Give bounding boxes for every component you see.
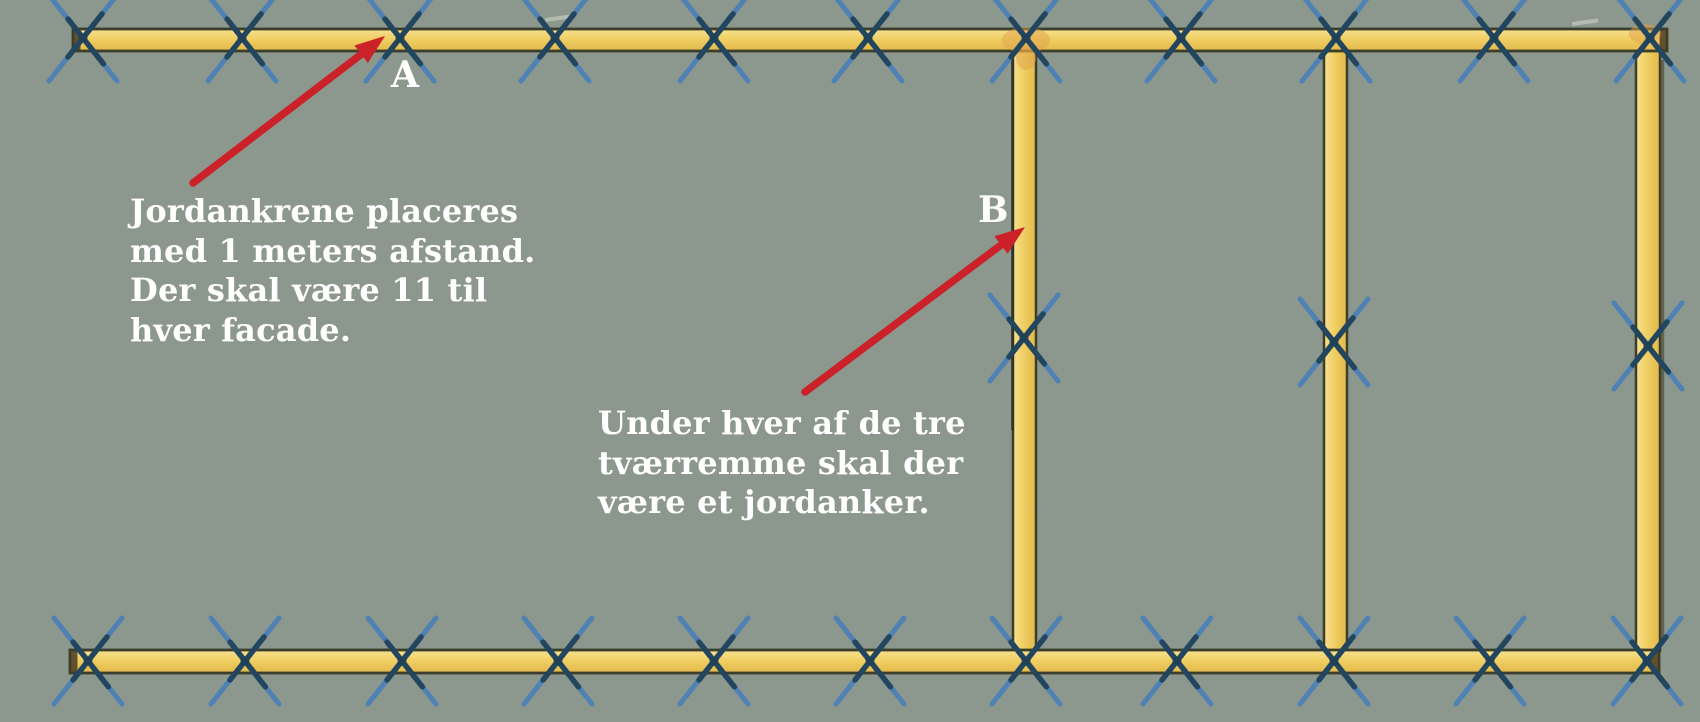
- note-jordankrene-placement: Jordankrene placeresmed 1 meters afstand…: [130, 192, 536, 350]
- diagram-canvas: Jordankrene placeresmed 1 meters afstand…: [0, 0, 1700, 722]
- callout-arrow-a: [193, 36, 385, 183]
- note-line: hver facade.: [130, 311, 536, 351]
- note-line: Under hver af de tre: [598, 404, 966, 444]
- note-line: Der skal være 11 til: [130, 271, 536, 311]
- beam-end-cap: [71, 651, 78, 672]
- frame-plan-diagram: [0, 0, 1700, 722]
- point-label-a: A: [391, 57, 419, 93]
- callout-arrow-b: [805, 227, 1025, 392]
- note-tvaerremme-anchors: Under hver af de tretværremme skal dervæ…: [598, 404, 966, 523]
- note-line: med 1 meters afstand.: [130, 232, 536, 272]
- scuff-mark: [1572, 18, 1598, 26]
- note-line: være et jordanker.: [598, 483, 966, 523]
- point-label-b: B: [978, 192, 1008, 228]
- note-line: tværremme skal der: [598, 444, 966, 484]
- note-line: Jordankrene placeres: [130, 192, 536, 232]
